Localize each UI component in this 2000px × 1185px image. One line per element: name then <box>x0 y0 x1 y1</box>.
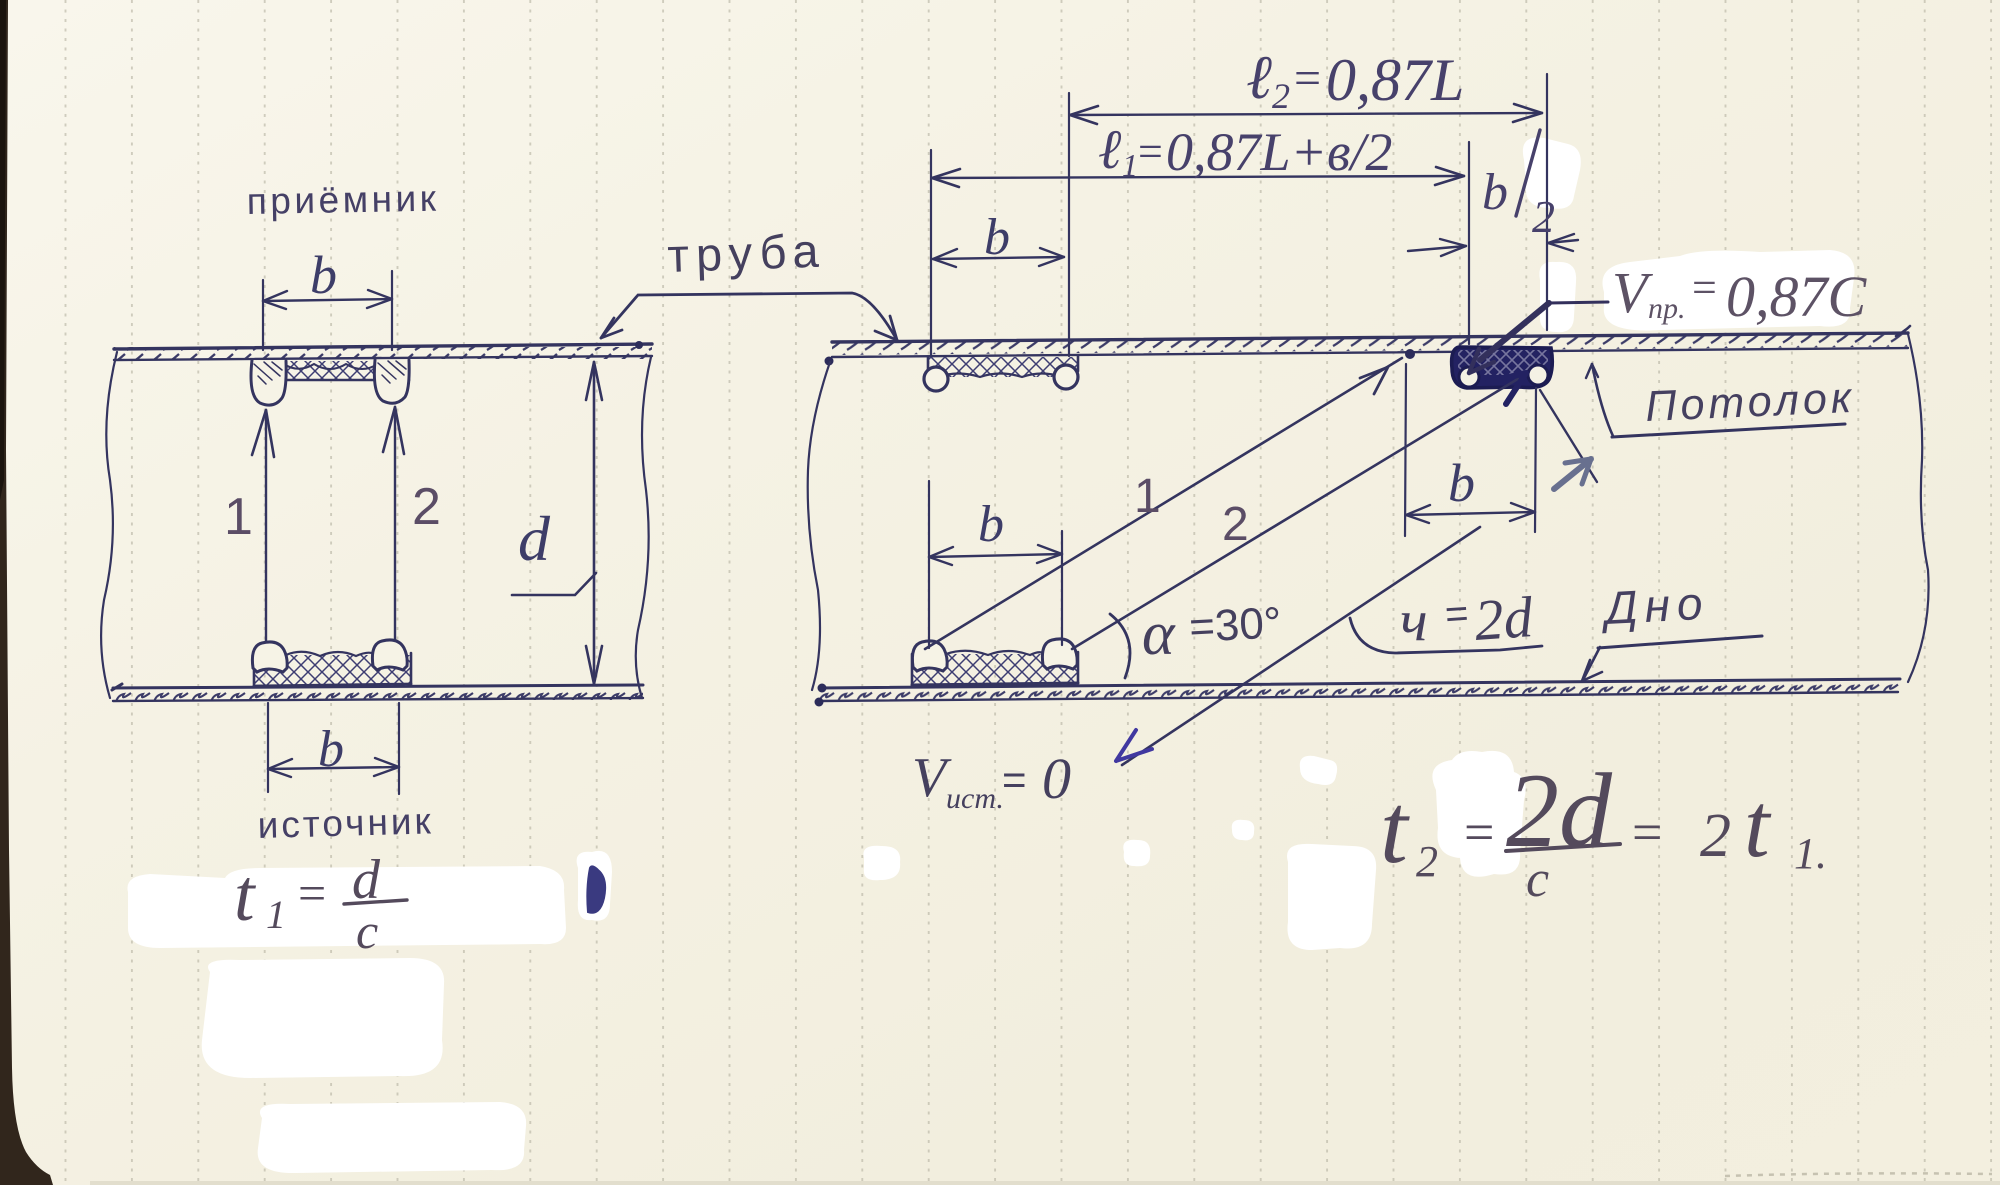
svg-text:t: t <box>234 855 257 937</box>
svg-text:ч: ч <box>1400 588 1428 653</box>
svg-text:0: 0 <box>1042 746 1071 811</box>
svg-text:2: 2 <box>1700 802 1731 870</box>
svg-text:d: d <box>518 503 551 574</box>
svg-text:2: 2 <box>1272 76 1290 116</box>
svg-text:=: = <box>1692 263 1717 312</box>
svg-text:α: α <box>1142 600 1176 668</box>
svg-text:ист.: ист. <box>946 782 1004 815</box>
svg-text:1: 1 <box>1122 147 1138 183</box>
svg-text:приёмник: приёмник <box>246 178 439 222</box>
svg-text:Дно: Дно <box>1599 577 1711 635</box>
svg-text:0,87L: 0,87L <box>1326 47 1464 113</box>
svg-text:1: 1 <box>1134 470 1161 523</box>
svg-text:0,87C: 0,87C <box>1726 264 1868 329</box>
svg-text:=: = <box>1138 127 1163 176</box>
svg-text:2: 2 <box>412 478 441 536</box>
svg-text:источник: источник <box>257 800 434 846</box>
svg-text:1: 1 <box>266 892 286 937</box>
svg-text:=: = <box>1464 802 1494 862</box>
svg-text:b: b <box>978 496 1004 553</box>
svg-text:=: = <box>1002 756 1027 803</box>
svg-text:b: b <box>984 209 1010 266</box>
svg-text:t: t <box>1380 773 1410 884</box>
svg-text:b: b <box>318 721 344 778</box>
svg-text:пр.: пр. <box>1648 292 1686 325</box>
svg-text:b: b <box>1448 453 1475 513</box>
svg-text:=: = <box>1294 52 1321 105</box>
svg-text:c: c <box>356 903 378 959</box>
svg-text:2d: 2d <box>1472 584 1535 653</box>
svg-text:b: b <box>1482 164 1508 221</box>
svg-text:b: b <box>310 245 337 305</box>
svg-text:2: 2 <box>1532 191 1555 242</box>
svg-text:t: t <box>1744 774 1772 876</box>
svg-text:ℓ: ℓ <box>1098 119 1122 181</box>
svg-text:2: 2 <box>1222 498 1249 551</box>
svg-text:c: c <box>1526 851 1549 908</box>
svg-text:1.: 1. <box>1794 829 1827 878</box>
svg-text:0,87L+в/2: 0,87L+в/2 <box>1166 122 1392 182</box>
svg-text:=: = <box>1632 802 1662 862</box>
svg-text:2: 2 <box>1416 837 1438 886</box>
svg-text:=: = <box>1444 591 1470 637</box>
svg-text:ℓ: ℓ <box>1246 44 1272 112</box>
svg-text:=30°: =30° <box>1188 598 1283 652</box>
svg-text:Потолок: Потолок <box>1644 374 1856 431</box>
svg-text:труба: труба <box>666 224 826 282</box>
svg-text:1: 1 <box>224 488 253 546</box>
svg-text:=: = <box>298 865 326 921</box>
